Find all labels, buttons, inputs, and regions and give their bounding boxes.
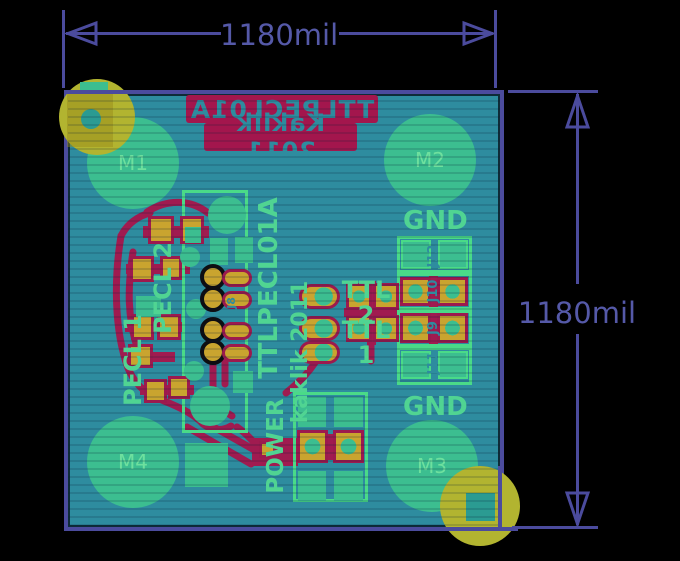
silkscreen-author-mirrored: Kaklik 2011 [204, 123, 357, 151]
power-pad [334, 471, 363, 501]
mounting-hole-m3-label: M3 [417, 454, 447, 478]
corner-pad-bottom-right [466, 493, 495, 521]
pin-pad [222, 322, 252, 340]
label-j11: J11 [426, 346, 440, 380]
mounting-hole-m1-label: M1 [118, 151, 148, 175]
copper-dot-green [184, 361, 204, 381]
connector-pad-j12 [438, 240, 468, 269]
copper-pad-green [185, 227, 201, 243]
label-j12: J12 [426, 239, 440, 273]
dimension-height-label: 1180mil [511, 296, 643, 330]
corner-copper-top-left [80, 82, 108, 90]
connector-pad-j10 [437, 277, 468, 306]
power-pad-mid [333, 430, 364, 463]
copper-pad-green [235, 237, 253, 263]
corner-hole-top-left [81, 109, 101, 129]
copper-pad-green [185, 443, 228, 487]
label-author-vertical: kaklik 2011 [289, 254, 313, 450]
pin-pad [222, 344, 252, 362]
label-title-vertical: TTLPECL01A [256, 173, 284, 403]
label-pecl1: PECL 1 [121, 301, 147, 419]
power-pad [334, 397, 363, 427]
mounting-hole-m4: M4 [87, 416, 179, 508]
mounting-hole-m4-label: M4 [118, 450, 148, 474]
label-j10: J10 [426, 274, 440, 308]
connector-pad-j11 [438, 351, 468, 379]
label-power: POWER [264, 398, 288, 494]
mounting-hole-m2-label: M2 [415, 148, 445, 172]
board-edge-segment [438, 527, 518, 531]
pcb-render-canvas: TTLPECL01A Kaklik 2011 M1 M2 M3 M4 [0, 0, 680, 561]
label-j8: J8 [225, 288, 237, 318]
board-edge-segment [498, 466, 502, 531]
label-gnd-top: GND [403, 208, 461, 235]
label-j9: J9 [426, 311, 440, 345]
copper-dot-green [180, 247, 200, 267]
dip-hole-top [208, 196, 246, 234]
connector-pad-j9 [437, 313, 468, 343]
mounting-hole-m2: M2 [384, 114, 476, 206]
board-edge-segment [66, 90, 128, 94]
label-pecl2: PECL 2 [151, 227, 177, 349]
smd-pad [144, 379, 167, 403]
copper-pad-green [233, 371, 253, 393]
dip-hole-bottom [190, 386, 230, 426]
smd-pad [168, 376, 190, 399]
label-gnd-bottom: GND [403, 394, 461, 421]
dimension-width-label: 1180mil [220, 18, 338, 52]
label-ttl1: TTL 1 [332, 318, 400, 368]
pin-pad [222, 269, 252, 287]
power-pad [298, 471, 326, 501]
copper-pad-green [210, 238, 228, 265]
